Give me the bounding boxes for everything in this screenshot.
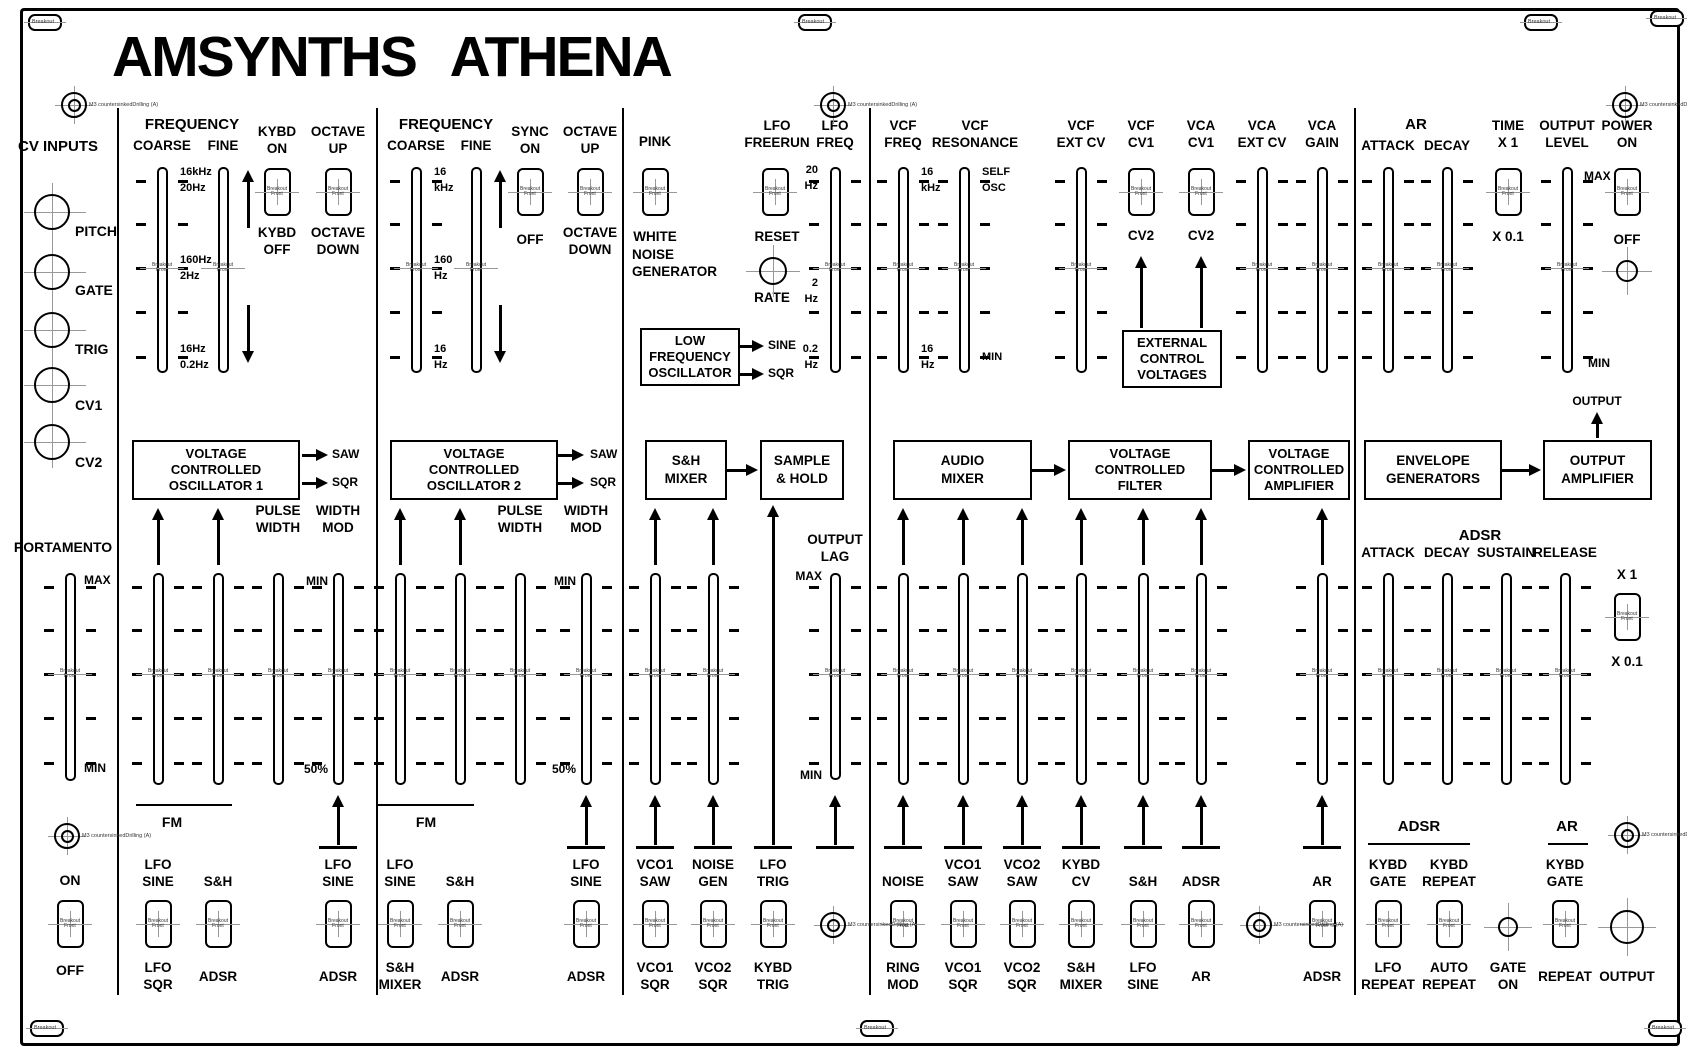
tick-mark bbox=[536, 586, 546, 589]
tick-mark bbox=[1278, 223, 1288, 226]
lfo-block: LOW FREQUENCY OSCILLATOR bbox=[640, 328, 740, 386]
label-sqr: SQR bbox=[698, 978, 727, 992]
tick-mark bbox=[1539, 629, 1549, 632]
breakout-front-note: Breakout Front bbox=[141, 919, 175, 929]
tick-mark bbox=[851, 180, 861, 183]
tick-mark bbox=[809, 311, 819, 314]
label-repeat: REPEAT bbox=[1422, 978, 1476, 992]
arrow-up-icon bbox=[1016, 508, 1028, 520]
tick-mark bbox=[1097, 180, 1107, 183]
arrow-right-icon bbox=[752, 368, 764, 380]
tick-mark bbox=[86, 762, 96, 765]
tick-mark bbox=[416, 762, 426, 765]
tick-mark bbox=[390, 223, 400, 226]
tick-mark bbox=[560, 762, 570, 765]
label-release: RELEASE bbox=[1533, 546, 1597, 560]
tick-mark bbox=[1278, 356, 1288, 359]
tick-mark bbox=[1117, 629, 1127, 632]
tick-mark bbox=[671, 762, 681, 765]
label-mod: MOD bbox=[322, 521, 354, 535]
tick-mark bbox=[1362, 311, 1372, 314]
tick-mark bbox=[1338, 586, 1348, 589]
tick-mark bbox=[602, 586, 612, 589]
tick-mark bbox=[1338, 356, 1348, 359]
arrow-up-icon bbox=[767, 505, 779, 517]
tick-mark bbox=[1541, 223, 1551, 226]
arrow-shaft bbox=[712, 517, 715, 565]
breakout-front-note: Breakout Front bbox=[1550, 263, 1584, 273]
tick-mark bbox=[1055, 586, 1065, 589]
vcf-env-level-slider[interactable] bbox=[1196, 573, 1207, 785]
tick-mark bbox=[980, 356, 990, 359]
tick-mark bbox=[1097, 223, 1107, 226]
arrow-shaft bbox=[1142, 804, 1145, 845]
tick-mark bbox=[1362, 762, 1372, 765]
tick-mark bbox=[919, 180, 929, 183]
label-x-0-1: X 0.1 bbox=[1611, 655, 1643, 669]
sh-mix-vco1-level-slider[interactable] bbox=[650, 573, 661, 785]
label-x-1: X 1 bbox=[1498, 136, 1518, 150]
drill-mark-note: M3 countersinkedDrilling (A) bbox=[1274, 922, 1343, 928]
tick-mark bbox=[1522, 629, 1532, 632]
adsr-decay-slider[interactable] bbox=[1442, 573, 1453, 785]
vco1-pulse-width-slider[interactable] bbox=[273, 573, 284, 785]
tick-mark bbox=[1097, 629, 1107, 632]
tick-mark bbox=[671, 586, 681, 589]
tick-mark bbox=[1338, 223, 1348, 226]
label-lfo: LFO bbox=[387, 858, 414, 872]
breakout-front-note: Breakout Front bbox=[53, 919, 87, 929]
trig-jack[interactable] bbox=[34, 312, 70, 348]
label-sine: SINE bbox=[322, 875, 354, 889]
arrow-base bbox=[636, 846, 674, 849]
vco1-fm-sh-slider[interactable] bbox=[213, 573, 224, 785]
synth-panel-drawing: AMSYNTHS ATHENA CV INPUTSPITCHGATETRIGCV… bbox=[0, 0, 1687, 1054]
breakout-front-note: Breakout Front bbox=[1005, 669, 1039, 679]
mix-vco1-level-slider[interactable] bbox=[958, 573, 969, 785]
tick-mark bbox=[919, 629, 929, 632]
label-cv2: CV2 bbox=[1128, 229, 1154, 243]
label-gate: GATE bbox=[1490, 961, 1527, 975]
tick-mark bbox=[312, 762, 322, 765]
tick-mark bbox=[416, 586, 426, 589]
adsr-sustain-slider[interactable] bbox=[1501, 573, 1512, 785]
tick-mark bbox=[1117, 762, 1127, 765]
label-on: ON bbox=[520, 142, 540, 156]
label-mod: MOD bbox=[887, 978, 919, 992]
tick-mark bbox=[178, 356, 188, 359]
vco1-width-mod-slider[interactable] bbox=[333, 573, 344, 785]
mix-vco2-level-slider[interactable] bbox=[1017, 573, 1028, 785]
panel-line bbox=[869, 108, 871, 995]
label-lfo: LFO bbox=[764, 119, 791, 133]
arrow-right-icon bbox=[1054, 464, 1066, 476]
label-trig: TRIG bbox=[757, 978, 789, 992]
tick-mark bbox=[178, 180, 188, 183]
tick-mark bbox=[234, 762, 244, 765]
tick-mark bbox=[938, 223, 948, 226]
breakout-front-note: Breakout Front bbox=[638, 669, 672, 679]
label-pulse: PULSE bbox=[255, 504, 300, 518]
arrow-up-icon bbox=[1137, 508, 1149, 520]
tick-mark bbox=[294, 586, 304, 589]
label-saw: SAW bbox=[948, 875, 979, 889]
label-vca: VCA bbox=[1187, 119, 1216, 133]
tick-mark bbox=[1421, 356, 1431, 359]
label-trig: TRIG bbox=[757, 875, 789, 889]
label-resonance: RESONANCE bbox=[932, 136, 1018, 150]
vco2-pulse-width-slider[interactable] bbox=[515, 573, 526, 785]
label-sqr: SQR bbox=[948, 978, 977, 992]
arrow-up-icon bbox=[454, 508, 466, 520]
tick-mark bbox=[1541, 311, 1551, 314]
tick-mark bbox=[560, 629, 570, 632]
label-down: DOWN bbox=[569, 243, 612, 257]
power-indicator[interactable] bbox=[1616, 260, 1638, 282]
tick-mark bbox=[1463, 629, 1473, 632]
tick-mark bbox=[536, 762, 546, 765]
arrow-up-icon bbox=[1016, 795, 1028, 807]
label-kybd: KYBD bbox=[1430, 858, 1468, 872]
label-sine: SINE bbox=[1127, 978, 1159, 992]
label-vca: VCA bbox=[1308, 119, 1337, 133]
tick-mark bbox=[416, 629, 426, 632]
label-x-0-1: X 0.1 bbox=[1492, 230, 1524, 244]
label-cv-inputs: CV INPUTS bbox=[18, 139, 98, 154]
tick-mark bbox=[374, 586, 384, 589]
breakout-front-note: Breakout Front bbox=[260, 187, 294, 197]
tick-mark bbox=[1581, 717, 1591, 720]
label-lfo: LFO bbox=[145, 961, 172, 975]
tick-mark bbox=[671, 629, 681, 632]
tick-mark bbox=[1583, 311, 1593, 314]
tick-mark bbox=[809, 223, 819, 226]
tick-mark bbox=[252, 717, 262, 720]
breakout-front-note: Breakout Front bbox=[947, 263, 981, 273]
label-adsr: ADSR bbox=[1459, 528, 1502, 543]
arrow-right-icon bbox=[1529, 464, 1541, 476]
arrow-shaft bbox=[1502, 469, 1532, 472]
label-pitch: PITCH bbox=[75, 224, 117, 238]
label-16: 16 bbox=[921, 167, 933, 178]
tick-mark bbox=[1097, 311, 1107, 314]
tick-mark bbox=[560, 717, 570, 720]
arrow-shaft bbox=[585, 804, 588, 845]
tick-mark bbox=[1362, 223, 1372, 226]
arrow-right-icon bbox=[572, 477, 584, 489]
tick-mark bbox=[1038, 762, 1048, 765]
label-16khz: 16kHz bbox=[180, 167, 212, 178]
breakout-front-note: Breakout Front bbox=[1184, 187, 1218, 197]
tick-mark bbox=[374, 762, 384, 765]
label-octave: OCTAVE bbox=[311, 125, 365, 139]
drill-mark-inner bbox=[1621, 829, 1634, 842]
tick-mark bbox=[629, 586, 639, 589]
vco2-fm-lfo-slider[interactable] bbox=[395, 573, 406, 785]
label-vco2: VCO2 bbox=[695, 961, 732, 975]
sample-hold-block: SAMPLE & HOLD bbox=[760, 440, 844, 500]
arrow-up-icon bbox=[897, 795, 909, 807]
mix-noise-level-slider[interactable] bbox=[898, 573, 909, 785]
arrow-shaft bbox=[1080, 804, 1083, 845]
tick-mark bbox=[1217, 762, 1227, 765]
label-mixer: MIXER bbox=[1060, 978, 1103, 992]
vco1-fm-lfo-slider[interactable] bbox=[153, 573, 164, 785]
tick-mark bbox=[136, 223, 146, 226]
arrow-up-icon bbox=[829, 795, 841, 807]
arrow-base bbox=[1003, 846, 1041, 849]
tick-mark bbox=[996, 717, 1006, 720]
label-frequency: FREQUENCY bbox=[399, 117, 493, 132]
breakout-front-note: Breakout Front bbox=[201, 669, 235, 679]
breakout-front-note: Breakout Front bbox=[1432, 919, 1466, 929]
panel-title: AMSYNTHS ATHENA bbox=[112, 24, 671, 90]
label-fine: FINE bbox=[461, 139, 492, 153]
label-adsr: ADSR bbox=[1303, 970, 1341, 984]
label-hz: Hz bbox=[434, 271, 447, 282]
tick-mark bbox=[877, 223, 887, 226]
tick-mark bbox=[1217, 586, 1227, 589]
tick-mark bbox=[494, 717, 504, 720]
vco2-width-mod-slider[interactable] bbox=[581, 573, 592, 785]
vcf-mod-level-slider[interactable] bbox=[1138, 573, 1149, 785]
tick-mark bbox=[132, 762, 142, 765]
breakout-front-note: Breakout Front bbox=[1548, 919, 1582, 929]
tick-mark bbox=[809, 762, 819, 765]
arrow-shaft bbox=[217, 517, 220, 565]
tick-mark bbox=[809, 180, 819, 183]
tick-mark bbox=[980, 180, 990, 183]
panel-line bbox=[136, 804, 232, 807]
label-off: OFF bbox=[517, 233, 544, 247]
arrow-shaft bbox=[1021, 804, 1024, 845]
tick-mark bbox=[432, 356, 442, 359]
drill-mark-inner bbox=[1619, 99, 1632, 112]
tick-mark bbox=[1404, 223, 1414, 226]
label-gen: GEN bbox=[698, 875, 727, 889]
breakout-front-note: Breakout Front bbox=[1548, 669, 1582, 679]
external-cv-block: EXTERNAL CONTROL VOLTAGES bbox=[1122, 330, 1222, 388]
label-lfo: LFO bbox=[1375, 961, 1402, 975]
tick-mark bbox=[877, 629, 887, 632]
tick-mark bbox=[1581, 629, 1591, 632]
tick-mark bbox=[919, 586, 929, 589]
breakout-front-note: Breakout Front bbox=[141, 669, 175, 679]
tick-mark bbox=[687, 762, 697, 765]
label-coarse: COARSE bbox=[387, 139, 445, 153]
breakout-front-note: Breakout Front bbox=[321, 669, 355, 679]
label-repeat: REPEAT bbox=[1361, 978, 1415, 992]
drill-mark-inner bbox=[68, 99, 81, 112]
breakout-front-note: Breakout Front bbox=[1371, 263, 1405, 273]
tick-mark bbox=[1217, 629, 1227, 632]
arrow-up-icon bbox=[957, 508, 969, 520]
arrow-base bbox=[1124, 846, 1162, 849]
tick-mark bbox=[1338, 311, 1348, 314]
tick-mark bbox=[602, 762, 612, 765]
tick-mark bbox=[1117, 717, 1127, 720]
drill-mark-inner bbox=[1253, 919, 1266, 932]
tick-mark bbox=[1278, 311, 1288, 314]
label-trig: TRIG bbox=[75, 342, 108, 356]
tick-mark bbox=[938, 356, 948, 359]
label-kybd: KYBD bbox=[1062, 858, 1100, 872]
breakout-front-note: Breakout Front bbox=[1489, 669, 1523, 679]
label-on: ON bbox=[60, 873, 81, 887]
tick-mark bbox=[44, 762, 54, 765]
tick-mark bbox=[494, 629, 504, 632]
tick-mark bbox=[1539, 717, 1549, 720]
label-sync: SYNC bbox=[511, 125, 549, 139]
breakout-front-note: Breakout Front bbox=[1491, 187, 1525, 197]
pitch-jack[interactable] bbox=[34, 194, 70, 230]
label-frequency: FREQUENCY bbox=[145, 117, 239, 132]
tick-mark bbox=[1421, 629, 1431, 632]
tick-mark bbox=[1055, 717, 1065, 720]
gate-on-jack[interactable] bbox=[1498, 917, 1518, 937]
tick-mark bbox=[1362, 629, 1372, 632]
panel-line bbox=[622, 108, 624, 995]
cv1-jack[interactable] bbox=[34, 367, 70, 403]
breakout-front-note: Breakout Front bbox=[569, 919, 603, 929]
vco2-fm-sh-slider[interactable] bbox=[455, 573, 466, 785]
tick-mark bbox=[1362, 586, 1372, 589]
tick-mark bbox=[1421, 762, 1431, 765]
tick-mark bbox=[1338, 180, 1348, 183]
tick-mark bbox=[1236, 223, 1246, 226]
breakout-note: Breakout bbox=[34, 1026, 56, 1031]
tick-mark bbox=[1463, 356, 1473, 359]
breakout-front-note: Breakout Front bbox=[1430, 263, 1464, 273]
tick-mark bbox=[312, 586, 322, 589]
arrow-shaft bbox=[1200, 517, 1203, 565]
label-sqr: SQR bbox=[590, 476, 616, 488]
tick-mark bbox=[1463, 223, 1473, 226]
tick-mark bbox=[919, 311, 929, 314]
label-adsr: ADSR bbox=[319, 970, 357, 984]
tick-mark bbox=[1421, 311, 1431, 314]
arrow-base bbox=[319, 846, 357, 849]
cv2-jack[interactable] bbox=[34, 424, 70, 460]
adsr-attack-slider[interactable] bbox=[1383, 573, 1394, 785]
lfo-rate-knob[interactable] bbox=[759, 257, 787, 285]
tick-mark bbox=[86, 629, 96, 632]
arrow-right-icon bbox=[316, 477, 328, 489]
adsr-release-slider[interactable] bbox=[1560, 573, 1571, 785]
breakout-front-note: Breakout Front bbox=[1064, 919, 1098, 929]
label-s-h: S&H bbox=[446, 875, 475, 889]
label-min: MIN bbox=[800, 769, 822, 781]
breakout-front-note: Breakout Front bbox=[201, 919, 235, 929]
breakout-front-note: Breakout Front bbox=[1184, 669, 1218, 679]
label-vco2: VCO2 bbox=[1004, 858, 1041, 872]
tick-mark bbox=[1097, 356, 1107, 359]
label-kybd: KYBD bbox=[1369, 858, 1407, 872]
label-vcf: VCF bbox=[1128, 119, 1155, 133]
label-khz: kHz bbox=[921, 183, 941, 194]
tick-mark bbox=[851, 586, 861, 589]
tick-mark bbox=[312, 717, 322, 720]
label-reset: RESET bbox=[754, 230, 799, 244]
tick-mark bbox=[1463, 586, 1473, 589]
tick-mark bbox=[979, 762, 989, 765]
label-lfo: LFO bbox=[1130, 961, 1157, 975]
label-hz: Hz bbox=[434, 360, 447, 371]
arrow-up-icon bbox=[332, 795, 344, 807]
arrow-up-icon bbox=[1135, 256, 1147, 268]
tick-mark bbox=[1338, 717, 1348, 720]
tick-mark bbox=[1404, 356, 1414, 359]
tick-mark bbox=[1581, 762, 1591, 765]
tick-mark bbox=[1480, 762, 1490, 765]
label-gain: GAIN bbox=[1305, 136, 1339, 150]
tick-mark bbox=[294, 762, 304, 765]
drill-mark-note: M3 countersinkedDrilling (A) bbox=[89, 102, 158, 108]
tick-mark bbox=[86, 586, 96, 589]
label-cv1: CV1 bbox=[1128, 136, 1154, 150]
label-sqr: SQR bbox=[332, 476, 358, 488]
vca-env-level-slider[interactable] bbox=[1317, 573, 1328, 785]
label-vcf: VCF bbox=[1068, 119, 1095, 133]
breakout-front-note: Breakout Front bbox=[1124, 187, 1158, 197]
arrow-shaft bbox=[1200, 265, 1203, 328]
breakout-front-note: Breakout Front bbox=[503, 669, 537, 679]
label-gate: GATE bbox=[75, 283, 113, 297]
output-jack[interactable] bbox=[1610, 910, 1644, 944]
tick-mark bbox=[1463, 762, 1473, 765]
label-decay: DECAY bbox=[1424, 546, 1470, 560]
label-khz: kHz bbox=[434, 183, 454, 194]
label-generator: GENERATOR bbox=[632, 265, 717, 279]
arrow-up-icon bbox=[649, 795, 661, 807]
tick-mark bbox=[1038, 586, 1048, 589]
tick-mark bbox=[1296, 586, 1306, 589]
tick-mark bbox=[1055, 629, 1065, 632]
tick-mark bbox=[1404, 180, 1414, 183]
tick-mark bbox=[1175, 629, 1185, 632]
arrow-up-icon bbox=[707, 508, 719, 520]
breakout-front-note: Breakout Front bbox=[383, 919, 417, 929]
label-white: WHITE bbox=[633, 230, 677, 244]
label-ext-cv: EXT CV bbox=[1238, 136, 1287, 150]
gate-jack[interactable] bbox=[34, 254, 70, 290]
label-lfo: LFO bbox=[573, 858, 600, 872]
tick-mark bbox=[851, 629, 861, 632]
tick-mark bbox=[671, 717, 681, 720]
tick-mark bbox=[1038, 717, 1048, 720]
label-attack: ATTACK bbox=[1361, 139, 1415, 153]
panel-line bbox=[378, 804, 474, 807]
tick-mark bbox=[1296, 311, 1306, 314]
breakout-front-note: Breakout Front bbox=[399, 263, 433, 273]
breakout-note: Breakout bbox=[1528, 20, 1550, 25]
breakout-front-note: Breakout Front bbox=[638, 919, 672, 929]
label-portamento: PORTAMENTO bbox=[14, 540, 112, 554]
arrow-shaft bbox=[772, 514, 775, 845]
arrow-shaft bbox=[1321, 804, 1324, 845]
label-time: TIME bbox=[1492, 119, 1524, 133]
label-power: POWER bbox=[1601, 119, 1652, 133]
label-0-2hz: 0.2Hz bbox=[180, 360, 209, 371]
tick-mark bbox=[1296, 717, 1306, 720]
tick-mark bbox=[178, 311, 188, 314]
tick-mark bbox=[312, 629, 322, 632]
label-fm: FM bbox=[162, 815, 182, 829]
vcf-kybd-cv-level-slider[interactable] bbox=[1076, 573, 1087, 785]
label-octave: OCTAVE bbox=[563, 125, 617, 139]
breakout-note: Breakout bbox=[802, 20, 824, 25]
sh-mix-noise-level-slider[interactable] bbox=[708, 573, 719, 785]
